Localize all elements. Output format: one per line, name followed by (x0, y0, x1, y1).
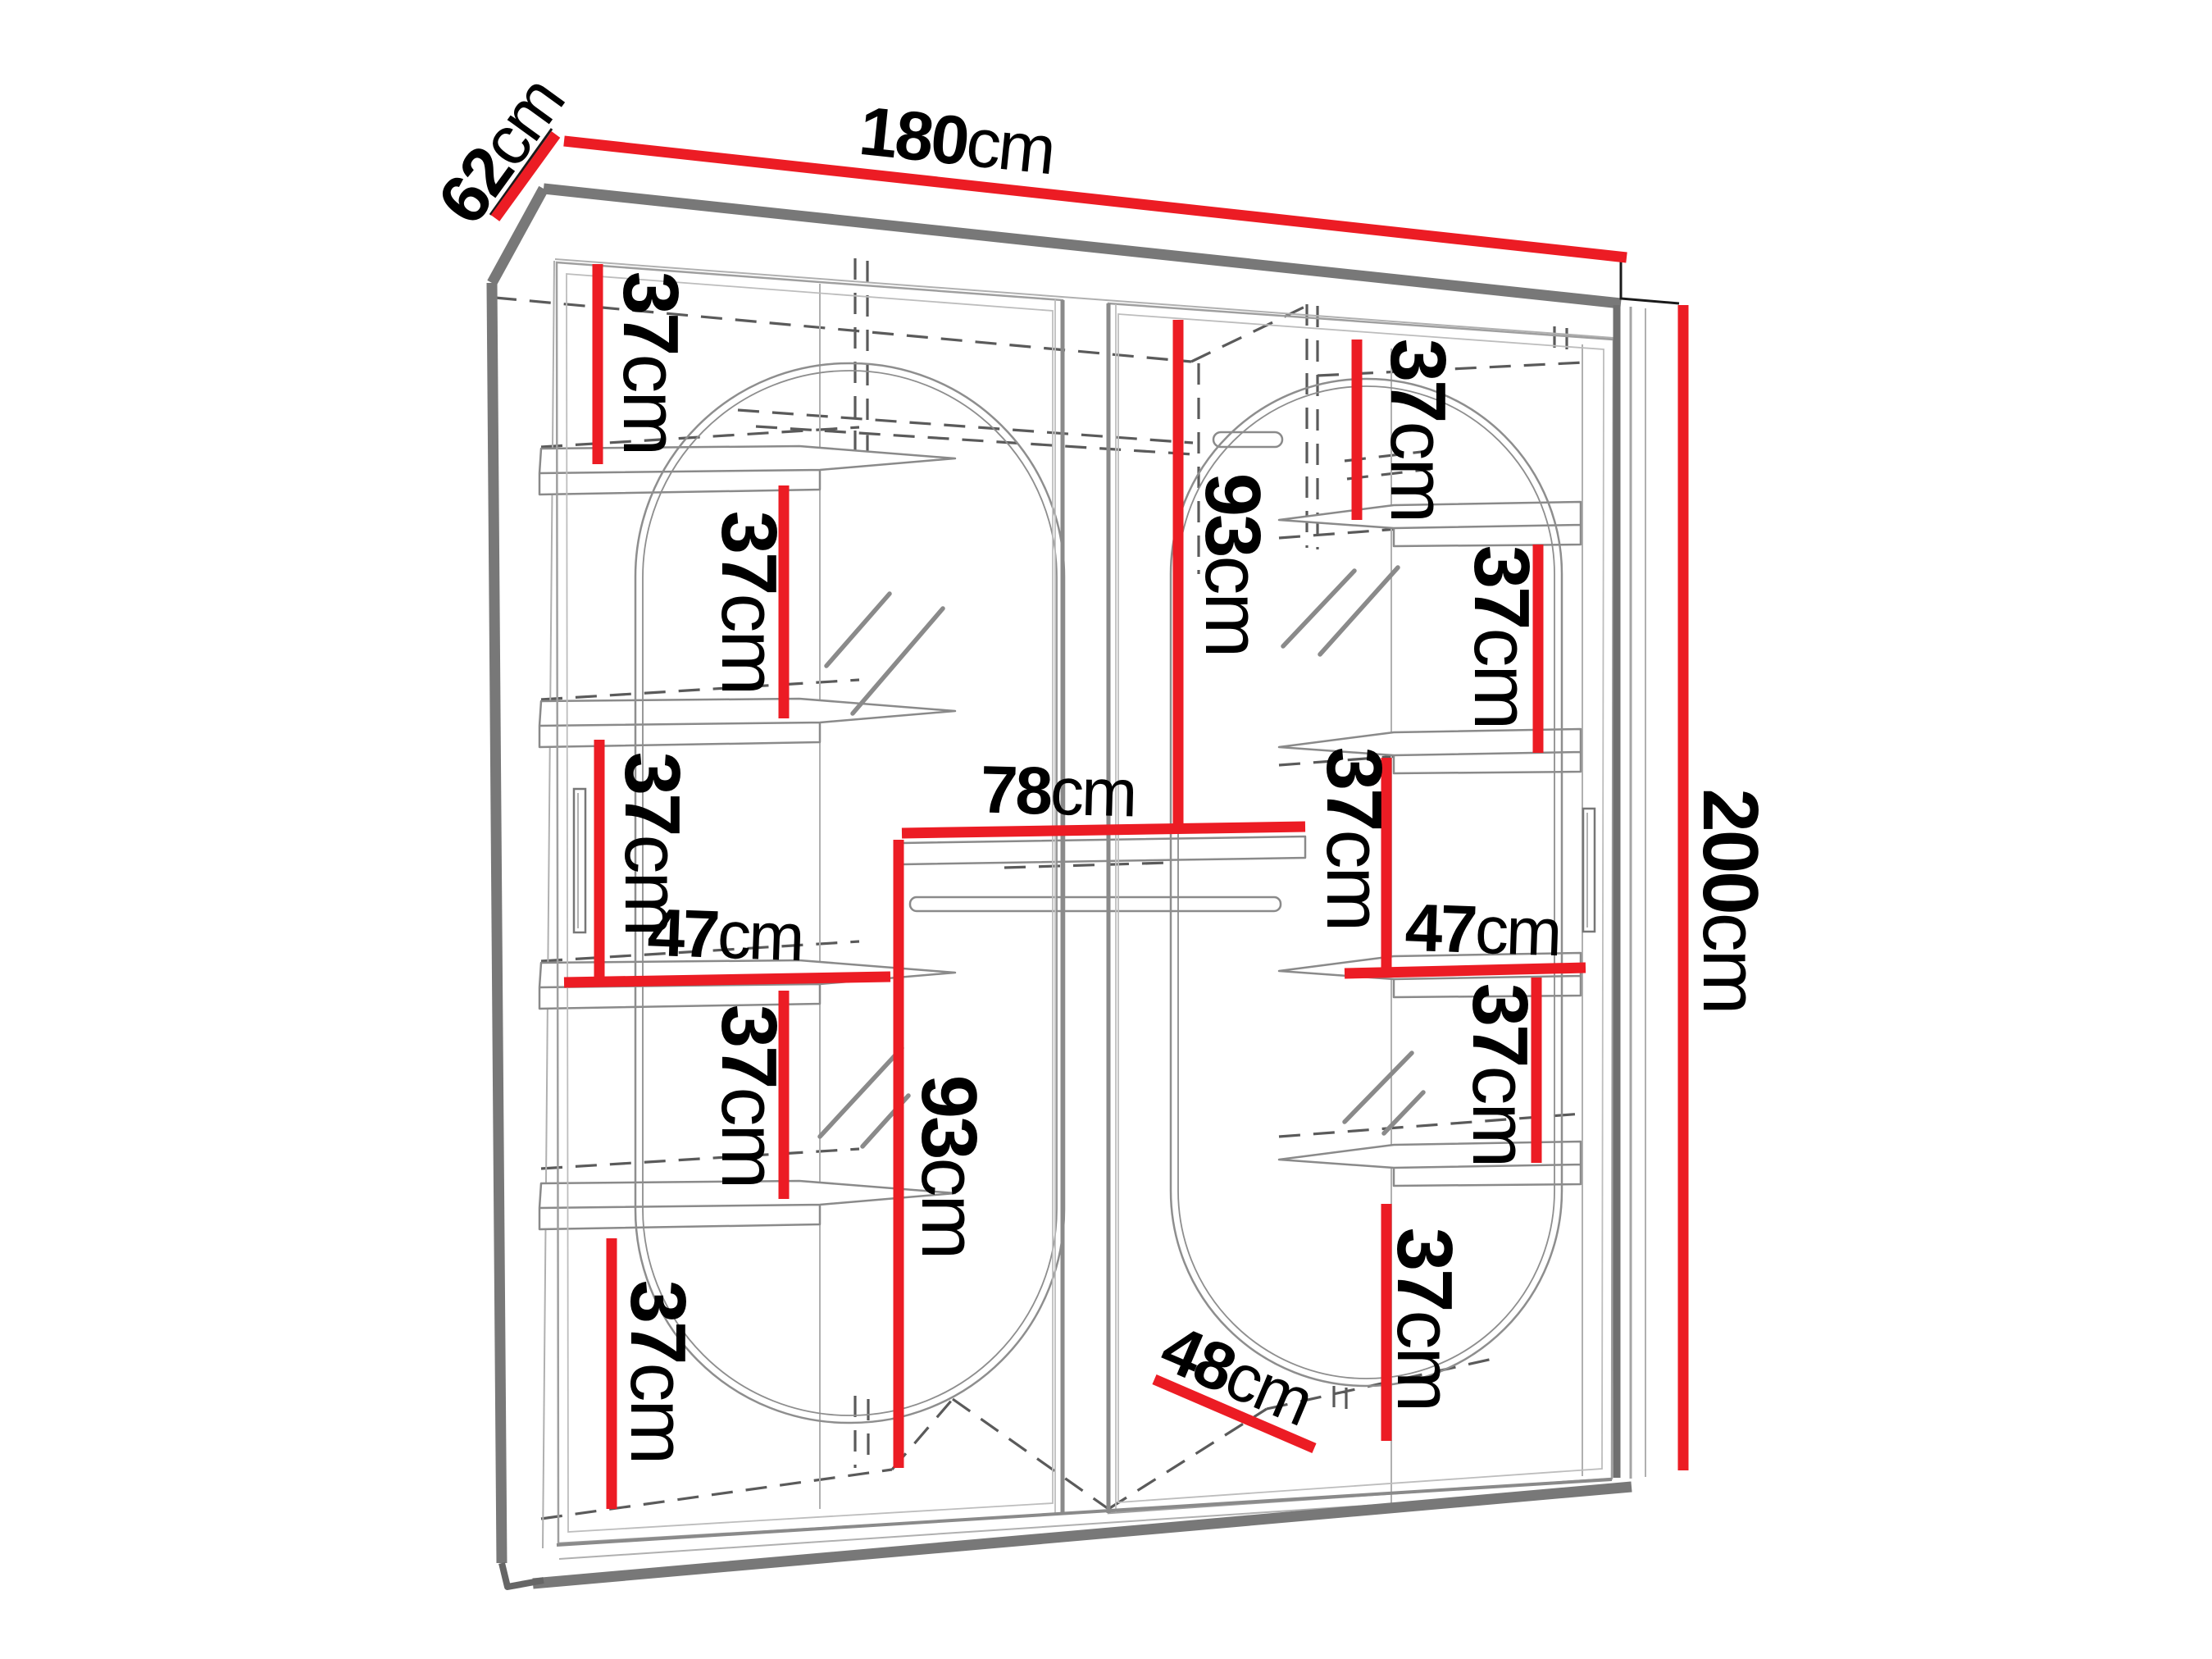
label-right-gap-4: 37cm (1456, 983, 1544, 1166)
label-right-gap-3: 37cm (1310, 747, 1398, 930)
left-door-handle-bar (574, 789, 585, 932)
diagram-canvas: 180cm 62cm 200cm 37cm 37cm 37cm 47cm 37c… (0, 0, 2212, 1659)
label-right-gap-1: 37cm (1374, 339, 1462, 522)
label-right-hanging-93: 93cm (1189, 473, 1277, 656)
right-door-handle (1583, 809, 1595, 932)
label-left-gap-2: 37cm (705, 511, 793, 694)
cabinet-bottom-left-foot (502, 1563, 544, 1587)
label-middle-width-78: 78cm (980, 752, 1136, 831)
left-door-handle (574, 789, 585, 932)
hanging-rail-left (910, 897, 1281, 911)
wardrobe-dimension-diagram: 180cm 62cm 200cm 37cm 37cm 37cm 47cm 37c… (0, 0, 2212, 1659)
label-height-200: 200cm (1686, 788, 1774, 1012)
label-left-gap-5: 37cm (614, 1280, 702, 1463)
label-right-gap-2: 37cm (1458, 545, 1545, 728)
label-left-gap-4: 37cm (705, 1005, 793, 1187)
label-right-shelf-width-47: 47cm (1404, 890, 1561, 970)
label-left-hanging-93: 93cm (905, 1075, 993, 1258)
right-door-handle-bar (1583, 809, 1595, 932)
dimension-connector-lines (1621, 253, 1679, 303)
label-left-gap-1: 37cm (607, 271, 694, 454)
dimension-line-left-shelf-width-47 (564, 977, 890, 982)
label-right-gap-5: 37cm (1381, 1228, 1468, 1411)
label-left-shelf-width-47: 47cm (646, 895, 803, 975)
